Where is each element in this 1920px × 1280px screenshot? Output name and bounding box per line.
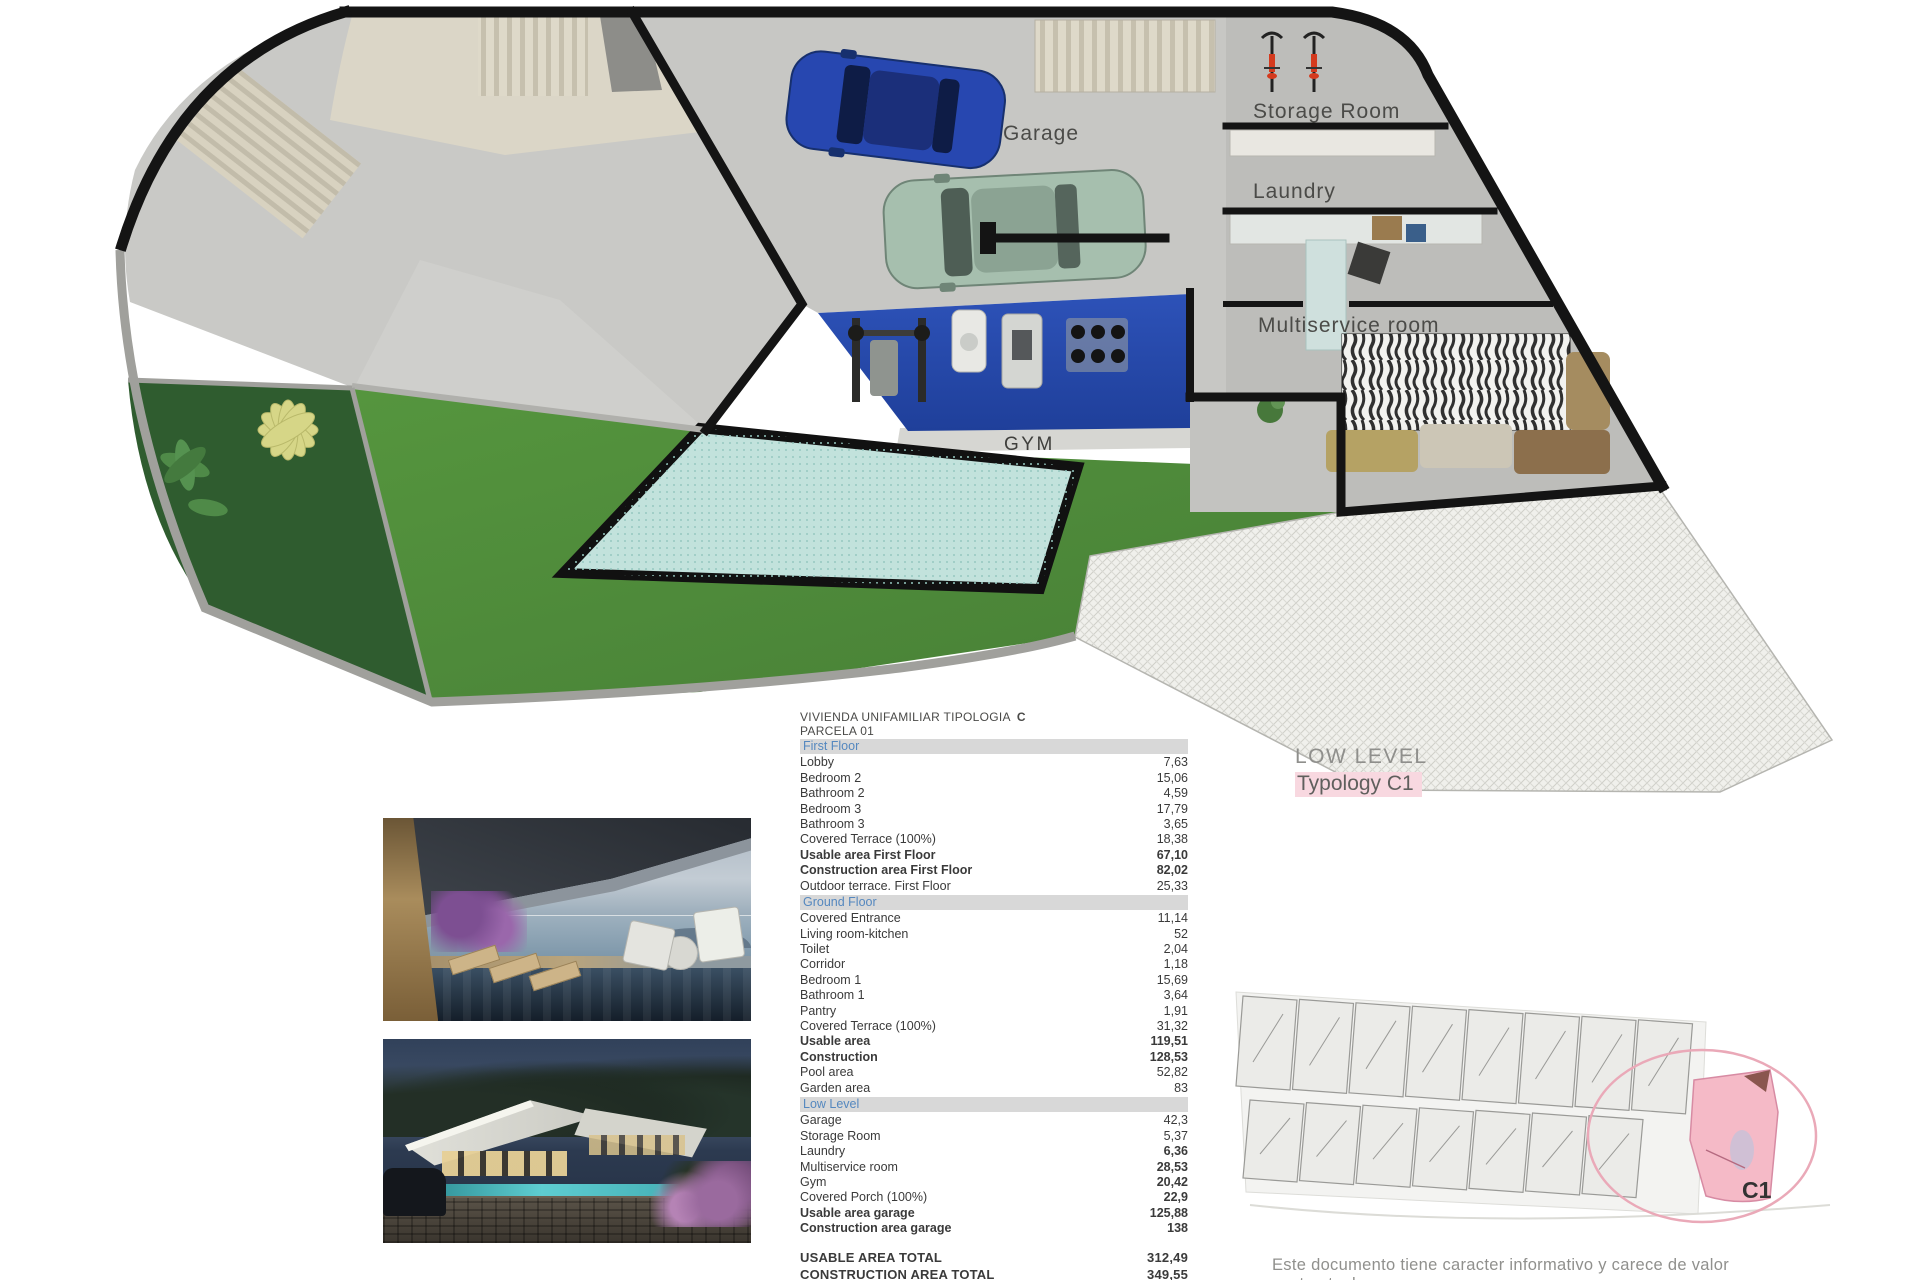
level-title: LOW LEVEL bbox=[1295, 745, 1428, 769]
table-subtitle: PARCELA 01 bbox=[800, 724, 1188, 738]
total-row: USABLE AREA TOTAL312,49 bbox=[800, 1250, 1188, 1267]
table-row: Covered Terrace (100%)18,38 bbox=[800, 832, 1188, 847]
table-row: Usable area First Floor67,10 bbox=[800, 848, 1188, 863]
table-row: Covered Entrance11,14 bbox=[800, 911, 1188, 926]
table-row: Bedroom 115,69 bbox=[800, 973, 1188, 988]
table-row: Outdoor terrace. First Floor25,33 bbox=[800, 879, 1188, 894]
lit-windows-left bbox=[442, 1151, 567, 1175]
photo-terrace-view bbox=[383, 818, 751, 1021]
table-row: Bedroom 215,06 bbox=[800, 771, 1188, 786]
table-row: Toilet2,04 bbox=[800, 942, 1188, 957]
photo-villa-exterior bbox=[383, 1039, 751, 1243]
table-row: Construction128,53 bbox=[800, 1050, 1188, 1065]
unit-c1-label: C1 bbox=[1742, 1177, 1772, 1203]
garage-label: Garage bbox=[1003, 122, 1079, 145]
table-row: Storage Room5,37 bbox=[800, 1129, 1188, 1144]
table-row: Usable area119,51 bbox=[800, 1034, 1188, 1049]
table-row: Pool area52,82 bbox=[800, 1065, 1188, 1080]
site-unit bbox=[1462, 1010, 1523, 1104]
table-row: Bathroom 13,64 bbox=[800, 988, 1188, 1003]
multiservice-room-label: Multiservice room bbox=[1258, 314, 1440, 337]
table-row: Covered Porch (100%)22,9 bbox=[800, 1190, 1188, 1205]
table-row: Covered Terrace (100%)31,32 bbox=[800, 1019, 1188, 1034]
table-row: Lobby7,63 bbox=[800, 755, 1188, 770]
zebra-rug bbox=[1342, 334, 1570, 430]
site-unit bbox=[1349, 1003, 1410, 1097]
site-unit bbox=[1356, 1105, 1417, 1187]
area-table: VIVIENDA UNIFAMILIAR TIPOLOGIAC PARCELA … bbox=[800, 710, 1188, 1280]
table-title: VIVIENDA UNIFAMILIAR TIPOLOGIAC bbox=[800, 710, 1188, 724]
table-row: Bedroom 317,79 bbox=[800, 802, 1188, 817]
table-row: Construction area First Floor82,02 bbox=[800, 863, 1188, 878]
laundry-label: Laundry bbox=[1253, 180, 1336, 203]
site-plan: C1 bbox=[1236, 992, 1830, 1222]
site-unit bbox=[1469, 1110, 1530, 1192]
gym-label: GYM bbox=[1004, 434, 1055, 455]
brochure-page: Garage Storage Room Laundry Multiservice… bbox=[0, 0, 1920, 1280]
chair-shape bbox=[622, 919, 676, 970]
green-car bbox=[882, 163, 1148, 294]
table-row: Laundry6,36 bbox=[800, 1144, 1188, 1159]
table-row: Garage42,3 bbox=[800, 1113, 1188, 1128]
typology-badge: Typology C1 bbox=[1295, 772, 1422, 797]
table-row: Usable area garage125,88 bbox=[800, 1206, 1188, 1221]
site-unit bbox=[1519, 1013, 1580, 1107]
level-caption: LOW LEVEL Typology C1 bbox=[1295, 745, 1428, 797]
site-unit bbox=[1526, 1113, 1587, 1195]
table-row: Construction area garage138 bbox=[800, 1221, 1188, 1236]
table-row: Multiservice room28,53 bbox=[800, 1160, 1188, 1175]
bougainvillea-shape bbox=[431, 891, 527, 952]
table-totals: USABLE AREA TOTAL312,49CONSTRUCTION AREA… bbox=[800, 1250, 1188, 1280]
site-unit bbox=[1632, 1020, 1693, 1114]
total-row: CONSTRUCTION AREA TOTAL349,55 bbox=[800, 1267, 1188, 1280]
laundry-counter bbox=[1230, 214, 1482, 244]
section-header: Low Level bbox=[800, 1097, 1188, 1112]
table-row: Bathroom 33,65 bbox=[800, 817, 1188, 832]
table-row: Garden area83 bbox=[800, 1081, 1188, 1096]
site-unit bbox=[1575, 1016, 1636, 1110]
site-unit bbox=[1406, 1006, 1467, 1100]
garage-stairs bbox=[1035, 20, 1215, 92]
table-row: Living room-kitchen52 bbox=[800, 927, 1188, 942]
section-header: First Floor bbox=[800, 739, 1188, 754]
site-unit bbox=[1243, 1100, 1304, 1182]
car-silhouette bbox=[383, 1168, 446, 1217]
site-unit bbox=[1236, 996, 1297, 1090]
table-rows: First FloorLobby7,63Bedroom 215,06Bathro… bbox=[800, 739, 1188, 1237]
chair-shape bbox=[692, 906, 745, 963]
storage-shelf bbox=[1230, 130, 1435, 156]
table-row: Pantry1,91 bbox=[800, 1004, 1188, 1019]
section-header: Ground Floor bbox=[800, 895, 1188, 910]
terrace-stairs bbox=[478, 16, 662, 96]
storage-room-label: Storage Room bbox=[1253, 100, 1400, 123]
table-row: Gym20,42 bbox=[800, 1175, 1188, 1190]
site-unit bbox=[1293, 999, 1354, 1093]
site-unit bbox=[1413, 1108, 1474, 1190]
lit-windows-right bbox=[589, 1135, 685, 1155]
table-row: Bathroom 24,59 bbox=[800, 786, 1188, 801]
disclaimer-text: Este documento tiene caracter informativ… bbox=[1272, 1256, 1772, 1280]
table-row: Corridor1,18 bbox=[800, 957, 1188, 972]
site-unit bbox=[1300, 1103, 1361, 1185]
flower-shrubs bbox=[641, 1161, 751, 1226]
